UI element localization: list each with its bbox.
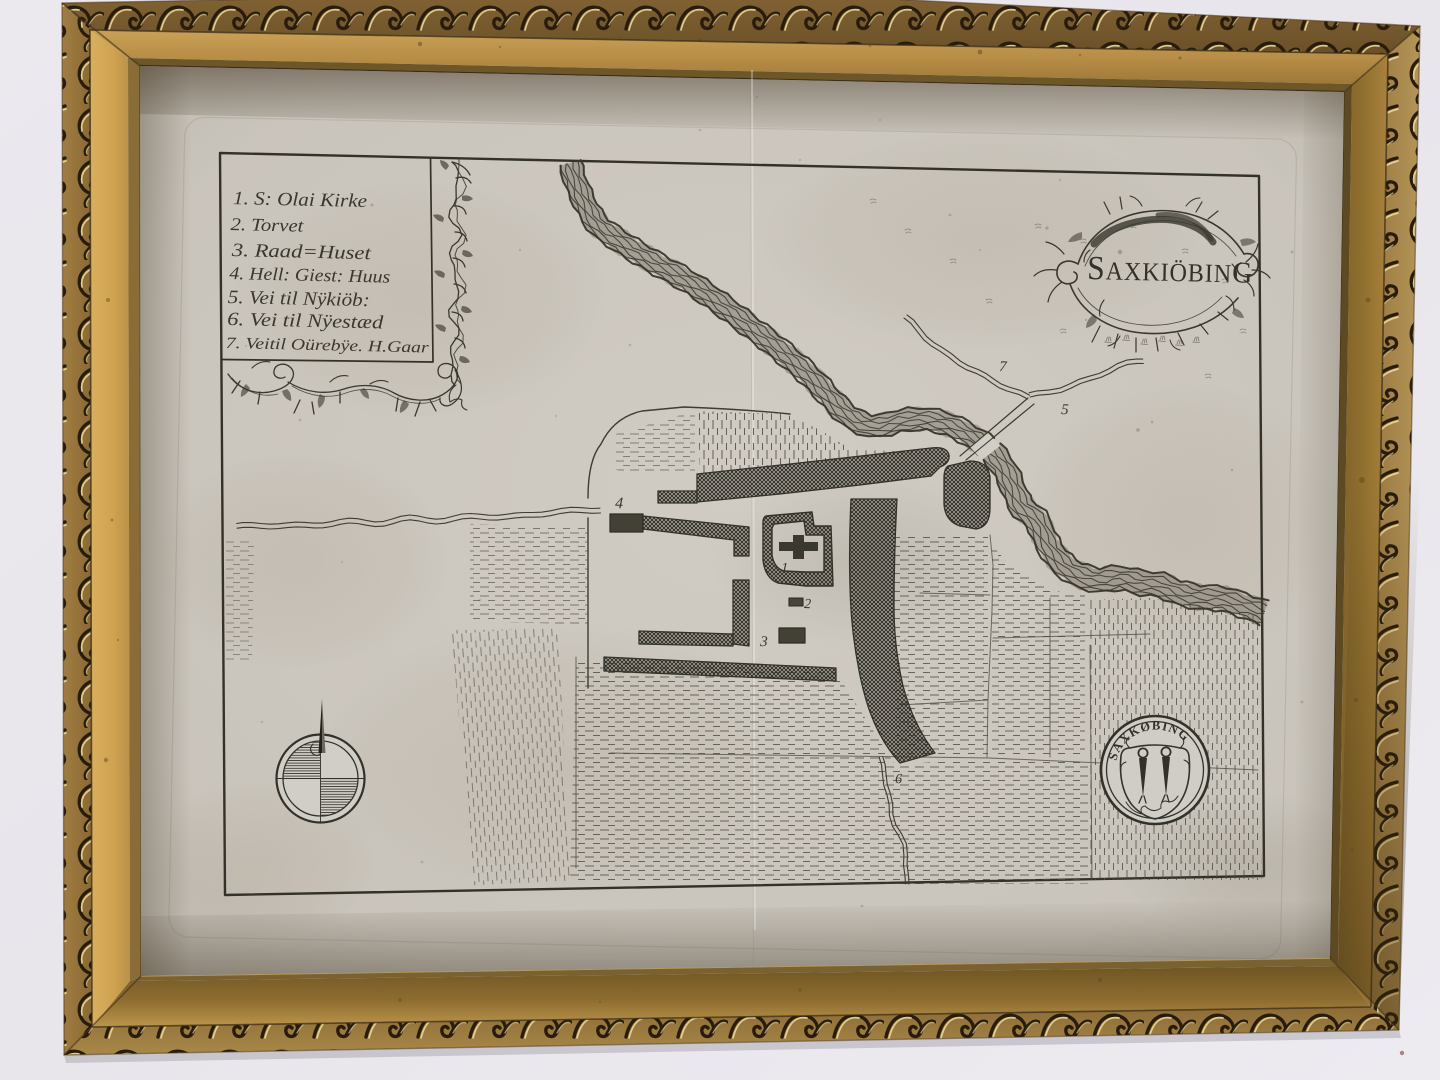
svg-text:4. Hell: Giest: Huus: 4. Hell: Giest: Huus xyxy=(229,263,390,287)
svg-text:3: 3 xyxy=(759,634,768,650)
svg-text:6: 6 xyxy=(895,772,903,787)
svg-text:1: 1 xyxy=(781,561,789,576)
svg-text:5. Vei til Nÿkiöb:: 5. Vei til Nÿkiöb: xyxy=(228,287,370,311)
svg-text:4: 4 xyxy=(615,495,624,512)
svg-text:2. Torvet: 2. Torvet xyxy=(230,214,305,236)
svg-text:6. Vei til Nÿestæd: 6. Vei til Nÿestæd xyxy=(227,309,384,334)
svg-text:5: 5 xyxy=(1061,402,1070,418)
svg-text:3. Raad=Huset: 3. Raad=Huset xyxy=(230,240,371,264)
svg-text:1. S: Olai Kirke: 1. S: Olai Kirke xyxy=(233,188,367,212)
svg-text:2: 2 xyxy=(804,597,812,612)
